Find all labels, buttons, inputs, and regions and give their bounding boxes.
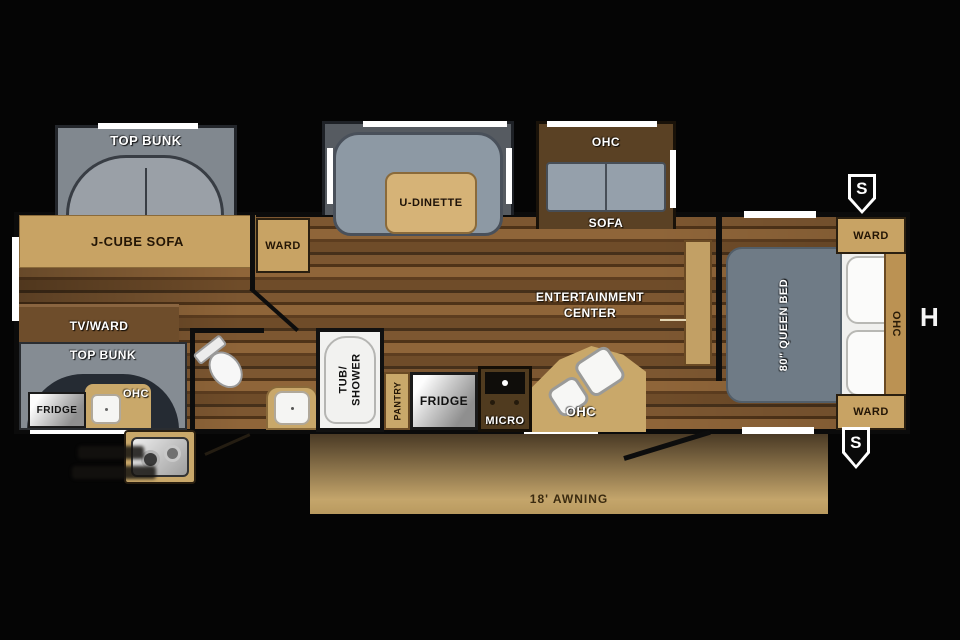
burner-icon xyxy=(164,445,181,462)
window xyxy=(12,237,19,321)
j-cube-sofa: J-CUBE SOFA xyxy=(19,215,256,268)
window xyxy=(98,123,198,129)
window xyxy=(744,211,816,218)
bathroom-wall-vertical xyxy=(190,328,195,430)
tub-shower: TUB/ SHOWER xyxy=(316,328,384,432)
tub-shower-label-2: SHOWER xyxy=(350,354,363,407)
microwave-dot xyxy=(514,400,519,405)
tub-shower-label-1: TUB/ xyxy=(337,354,350,407)
bedroom-wardrobe-bottom-label: WARD xyxy=(853,406,889,418)
sink-drain xyxy=(105,408,108,411)
front-bunk-arch xyxy=(66,155,224,215)
callout-leader-line xyxy=(660,319,686,321)
window xyxy=(506,148,512,204)
microwave-label: MICRO xyxy=(481,415,529,427)
sofa-ohc-label: OHC xyxy=(539,135,673,149)
front-wardrobe: WARD xyxy=(256,218,310,273)
speaker-label-bottom: S xyxy=(850,433,862,453)
rear-bunk-ohc-label: OHC xyxy=(123,388,149,400)
window xyxy=(363,121,507,127)
queen-bed-label: 80" QUEEN BED xyxy=(778,279,790,371)
rear-bunk-room: TOP BUNK FRIDGE OHC xyxy=(19,342,187,430)
height-marker: H xyxy=(920,302,939,333)
wall-segment xyxy=(250,215,255,291)
awning: 18' AWNING xyxy=(310,434,828,514)
rear-bunk-fridge-label: FRIDGE xyxy=(37,405,78,416)
front-wardrobe-label: WARD xyxy=(265,240,301,252)
speaker-icon: S xyxy=(842,427,870,469)
window xyxy=(742,427,814,434)
watermark-smudge xyxy=(78,446,144,459)
window xyxy=(547,121,657,127)
dinette-slide: U-DINETTE xyxy=(322,121,514,215)
microwave-dot xyxy=(490,400,495,405)
rear-bunk-label: TOP BUNK xyxy=(21,348,185,362)
bunk-seam xyxy=(145,168,147,215)
cushion-seam xyxy=(605,164,607,210)
bath-exterior-door-swing xyxy=(204,433,250,456)
microwave-door xyxy=(485,372,525,394)
entertainment-center-callout: ENTERTAINMENT CENTER xyxy=(518,289,662,321)
pantry: PANTRY xyxy=(384,372,410,430)
bedroom-wardrobe-top-label: WARD xyxy=(853,230,889,242)
entertainment-label-1: ENTERTAINMENT xyxy=(518,289,662,305)
kitchen-ohc-label: OHC xyxy=(546,404,616,419)
speaker-icon: S xyxy=(848,174,876,214)
speaker-label-top: S xyxy=(856,179,868,199)
kitchen-fridge-label: FRIDGE xyxy=(420,394,468,408)
bedroom-ohc: OHC xyxy=(884,254,906,394)
entertainment-label-2: CENTER xyxy=(518,305,662,321)
pantry-label: PANTRY xyxy=(392,382,402,421)
bedroom-wardrobe-top: WARD xyxy=(836,217,906,254)
entertainment-cabinet xyxy=(684,240,712,366)
microwave: MICRO xyxy=(478,366,532,432)
rear-bunk-sink xyxy=(91,394,121,424)
bedroom-wardrobe-bottom: WARD xyxy=(836,394,906,430)
bedroom-ohc-label: OHC xyxy=(890,311,902,337)
window xyxy=(327,148,333,204)
rear-bunk-fridge: FRIDGE xyxy=(28,392,86,428)
dinette-table: U-DINETTE xyxy=(385,172,477,234)
sofa-slide: OHC SOFA xyxy=(536,121,676,229)
sink-drain xyxy=(291,407,294,410)
j-cube-sofa-label: J-CUBE SOFA xyxy=(91,234,184,249)
microwave-knob xyxy=(502,380,508,386)
watermark-smudge xyxy=(72,466,156,479)
tv-wardrobe: TV/WARD xyxy=(19,304,179,346)
bedroom-wall xyxy=(716,217,722,381)
front-bunk-label: TOP BUNK xyxy=(58,133,234,148)
queen-bed: 80" QUEEN BED xyxy=(726,247,842,403)
tv-wardrobe-label: TV/WARD xyxy=(70,319,129,333)
sofa-label: SOFA xyxy=(539,216,673,230)
bathroom-vanity xyxy=(266,386,318,430)
kitchen-fridge: FRIDGE xyxy=(410,372,478,430)
front-bunk-slide: TOP BUNK xyxy=(55,125,237,215)
dinette-label: U-DINETTE xyxy=(399,197,462,209)
window xyxy=(670,150,676,208)
sofa-cushions xyxy=(546,162,666,212)
floorplan-canvas: J-CUBE SOFA WARD TV/WARD TOP BUNK FRIDGE… xyxy=(0,0,960,640)
awning-label: 18' AWNING xyxy=(310,492,828,506)
bathroom-sink xyxy=(274,391,310,425)
